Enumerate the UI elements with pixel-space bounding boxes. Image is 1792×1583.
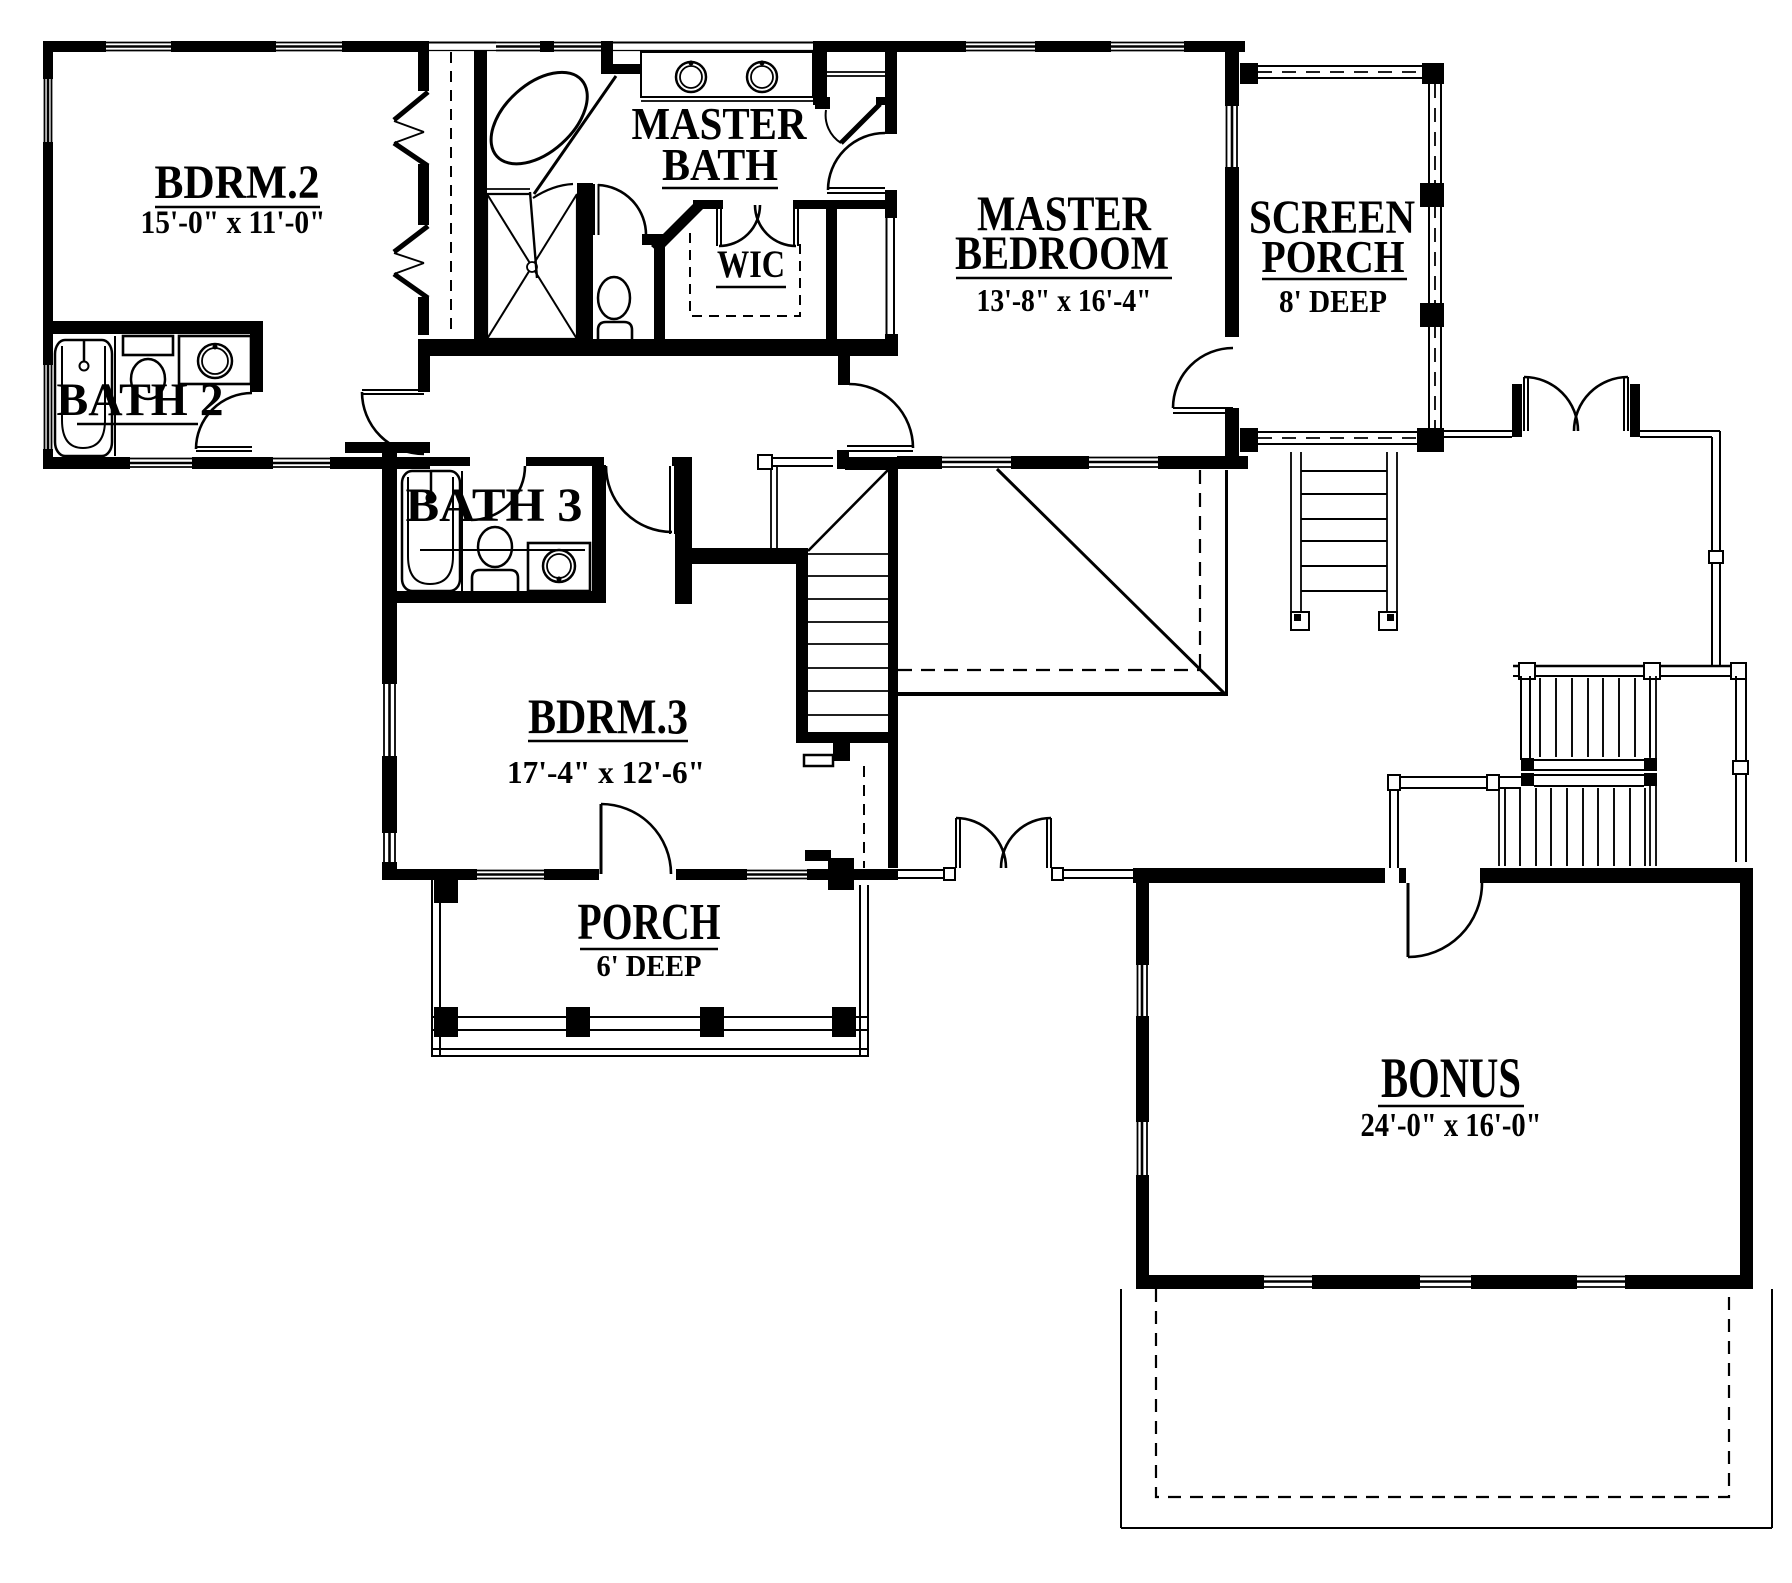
svg-text:BEDROOM: BEDROOM: [955, 227, 1169, 280]
svg-text:WIC: WIC: [717, 243, 785, 286]
svg-text:8' DEEP: 8' DEEP: [1279, 283, 1387, 319]
svg-text:BATH 2: BATH 2: [57, 374, 224, 426]
svg-text:PORCH: PORCH: [1262, 231, 1405, 282]
svg-text:BDRM.2: BDRM.2: [155, 156, 320, 209]
svg-text:BDRM.3: BDRM.3: [528, 688, 688, 744]
svg-text:6' DEEP: 6' DEEP: [597, 948, 702, 983]
svg-text:17'-4" x 12'-6": 17'-4" x 12'-6": [507, 754, 705, 790]
svg-text:PORCH: PORCH: [578, 894, 721, 951]
svg-text:BONUS: BONUS: [1381, 1047, 1521, 1110]
svg-text:24'-0" x 16'-0": 24'-0" x 16'-0": [1361, 1107, 1542, 1144]
svg-text:13'-8" x 16'-4": 13'-8" x 16'-4": [977, 282, 1152, 318]
svg-text:15'-0" x 11'-0": 15'-0" x 11'-0": [141, 205, 326, 241]
svg-text:BATH 3: BATH 3: [406, 479, 583, 532]
svg-text:BATH: BATH: [662, 139, 778, 190]
